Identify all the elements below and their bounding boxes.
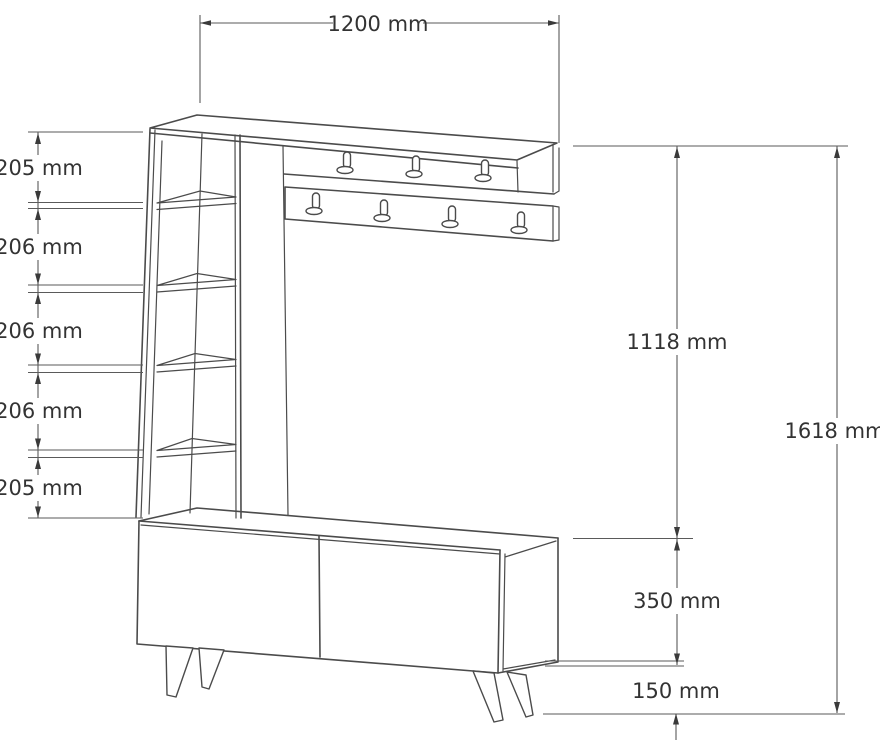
dim-label-floor-clearance: 150 mm bbox=[632, 679, 720, 703]
dim-label-left-segment-3: 206 mm bbox=[0, 319, 83, 343]
cabinet bbox=[137, 508, 558, 722]
coat-hook bbox=[475, 160, 491, 182]
top-board bbox=[150, 115, 559, 194]
dimension-top-width: 1200 mm bbox=[200, 11, 559, 143]
furniture-wireframe bbox=[136, 115, 559, 722]
shelf bbox=[157, 354, 236, 373]
cabinet-leg bbox=[199, 648, 224, 689]
dimension-floor-clearance: 150 mm bbox=[632, 679, 720, 740]
dimension-left-shelf-spacing: 205 mm 206 mm 206 mm 206 mm 205 mm bbox=[0, 132, 143, 518]
coat-hook bbox=[374, 200, 390, 222]
upper-hook-rail bbox=[284, 152, 554, 194]
dim-label-left-segment-2: 206 mm bbox=[0, 235, 83, 259]
dim-label-total-height: 1618 mm bbox=[784, 419, 880, 443]
dim-label-left-segment-4: 206 mm bbox=[0, 399, 83, 423]
coat-hook bbox=[406, 156, 422, 178]
lower-hook-rail bbox=[285, 187, 559, 241]
shelf bbox=[157, 274, 236, 293]
shelf bbox=[157, 191, 236, 210]
cabinet-door-divider bbox=[319, 536, 320, 657]
dim-label-cabinet-height: 350 mm bbox=[633, 589, 721, 613]
dimension-total-height: 1618 mm bbox=[784, 147, 880, 714]
coat-hook bbox=[511, 212, 527, 234]
dimension-upper-height: 1118 mm bbox=[626, 147, 727, 539]
dim-label-upper-height: 1118 mm bbox=[626, 330, 727, 354]
dim-label-left-segment-1: 205 mm bbox=[0, 156, 83, 180]
cabinet-leg bbox=[473, 671, 503, 722]
technical-drawing-page: 1200 mm 205 mm 206 mm 206 mm 206 mm 205 … bbox=[0, 0, 880, 740]
dim-label-left-segment-5: 205 mm bbox=[0, 476, 83, 500]
coat-hook bbox=[337, 152, 353, 174]
dim-label-top-width: 1200 mm bbox=[327, 12, 428, 36]
furniture-dimension-drawing: 1200 mm 205 mm 206 mm 206 mm 206 mm 205 … bbox=[0, 0, 880, 740]
cabinet-leg bbox=[507, 672, 533, 717]
cabinet-leg bbox=[166, 646, 193, 697]
coat-hook bbox=[442, 206, 458, 228]
dimension-cabinet-height: 350 mm bbox=[633, 539, 721, 665]
shelf-column bbox=[136, 129, 241, 518]
shelf bbox=[157, 439, 236, 458]
coat-hook bbox=[306, 193, 322, 215]
